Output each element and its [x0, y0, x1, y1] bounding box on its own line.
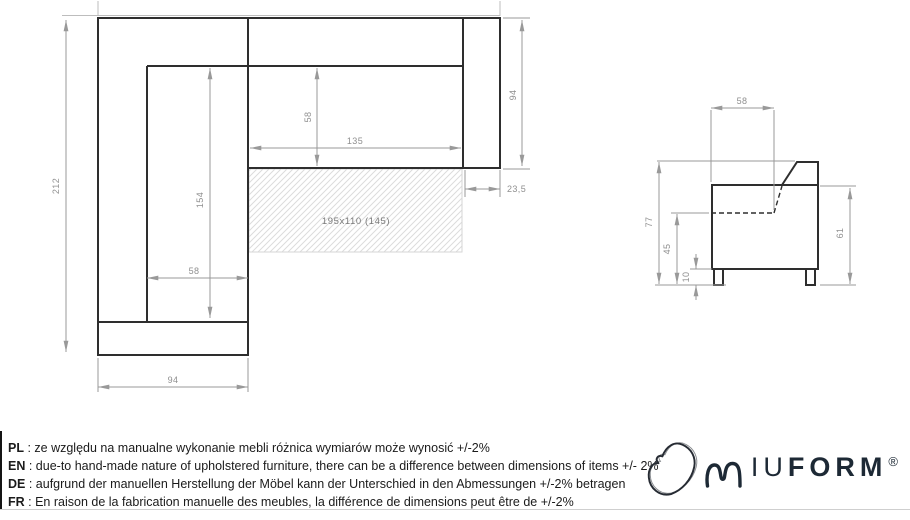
- dim-leg-height: 10: [681, 254, 712, 300]
- logo-letters-iu: IU: [751, 452, 788, 482]
- tolerance-notes: PL : ze względu na manualne wykonanie me…: [8, 439, 648, 511]
- dim-armrest-width: 23,5: [465, 170, 526, 197]
- note-lang-code: DE: [8, 477, 25, 491]
- dim-body-depth: 94: [503, 18, 530, 169]
- dim-label-10: 10: [681, 272, 691, 283]
- note-lang-code: PL: [8, 441, 24, 455]
- miuform-logo: IUFORM®: [645, 434, 898, 500]
- note-pl: PL : ze względu na manualne wykonanie me…: [8, 439, 648, 457]
- dim-chaise-seat-width: 58: [147, 266, 248, 278]
- dim-label-58-side: 58: [737, 96, 748, 106]
- dim-total-length: 212: [51, 20, 66, 352]
- heart-icon: [645, 436, 701, 498]
- note-text: due-to hand-made nature of upholstered f…: [36, 459, 659, 473]
- dim-label-94-right: 94: [508, 90, 518, 101]
- dim-label-23-5: 23,5: [507, 184, 526, 194]
- bed-area-label: 195x110 (145): [322, 216, 390, 227]
- technical-drawing-page: 195x110 (145) 212 94: [0, 0, 910, 520]
- note-separator: :: [25, 477, 35, 491]
- side-view: 58 77 45 10: [644, 96, 856, 300]
- dim-total-height: 77: [644, 161, 795, 285]
- dim-side-seat-depth: 58: [711, 96, 774, 210]
- note-text: En raison de la fabrication manuelle des…: [35, 495, 574, 509]
- note-text: ze względu na manualne wykonanie mebli r…: [34, 441, 489, 455]
- top-extension-lines: [62, 1, 500, 16]
- dim-label-45: 45: [662, 244, 672, 255]
- sofa-dimension-drawing: 195x110 (145) 212 94: [0, 0, 910, 430]
- note-separator: :: [24, 441, 34, 455]
- dim-label-154: 154: [195, 192, 205, 208]
- dim-label-58-chaise: 58: [189, 266, 200, 276]
- dim-seat-depth: 58: [303, 68, 317, 166]
- bed-extension-area: [249, 169, 462, 252]
- note-lang-code: EN: [8, 459, 25, 473]
- dim-label-135: 135: [347, 136, 363, 146]
- dim-chaise-width: 94: [98, 358, 248, 392]
- bottom-divider: [0, 509, 910, 510]
- plan-view: 195x110 (145) 212 94: [51, 1, 530, 392]
- dim-label-94-bottom: 94: [168, 375, 179, 385]
- dim-label-61: 61: [835, 228, 845, 239]
- dim-chaise-seat-length: 154: [195, 68, 210, 318]
- notes-left-border: [0, 431, 2, 509]
- hidden-seat-line: [711, 186, 782, 213]
- note-de: DE : aufgrund der manuellen Herstellung …: [8, 475, 648, 493]
- dim-label-77: 77: [644, 217, 654, 228]
- note-lang-code: FR: [8, 495, 25, 509]
- logo-wordmark: IUFORM®: [751, 452, 898, 483]
- dim-arm-height: 61: [820, 186, 856, 285]
- dim-label-212: 212: [51, 178, 61, 194]
- note-text: aufgrund der manuellen Herstellung der M…: [36, 477, 626, 491]
- side-outline: [712, 162, 818, 285]
- dim-seat-width: 135: [250, 136, 461, 148]
- note-en: EN : due-to hand-made nature of upholste…: [8, 457, 648, 475]
- note-separator: :: [25, 459, 35, 473]
- dim-label-58-seat: 58: [303, 112, 313, 123]
- logo-m-squiggle: [705, 456, 745, 488]
- note-separator: :: [25, 495, 35, 509]
- logo-letters-form: FORM: [788, 452, 887, 482]
- registered-trademark-icon: ®: [888, 454, 898, 469]
